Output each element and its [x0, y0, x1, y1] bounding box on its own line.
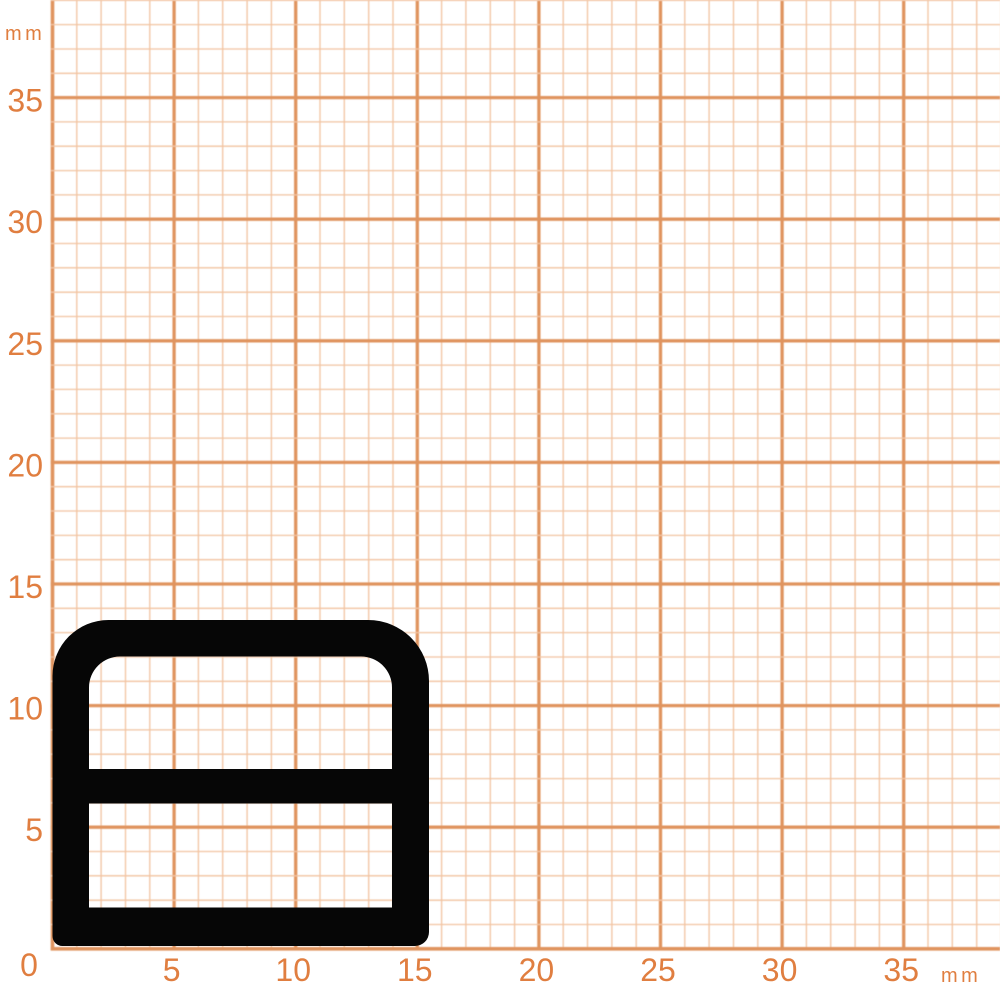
svg-text:0: 0 — [20, 947, 38, 983]
svg-text:35: 35 — [883, 952, 919, 988]
svg-text:30: 30 — [762, 952, 798, 988]
svg-text:mm: mm — [941, 965, 981, 987]
svg-text:25: 25 — [640, 952, 676, 988]
svg-text:5: 5 — [163, 952, 181, 988]
svg-text:15: 15 — [7, 569, 43, 605]
svg-text:25: 25 — [7, 326, 43, 362]
svg-text:35: 35 — [7, 83, 43, 119]
svg-text:20: 20 — [519, 952, 555, 988]
svg-text:30: 30 — [7, 204, 43, 240]
svg-text:15: 15 — [397, 952, 433, 988]
svg-text:5: 5 — [25, 812, 43, 848]
svg-text:10: 10 — [7, 691, 43, 727]
svg-text:mm: mm — [5, 23, 45, 45]
svg-text:20: 20 — [7, 447, 43, 483]
svg-text:10: 10 — [275, 952, 311, 988]
